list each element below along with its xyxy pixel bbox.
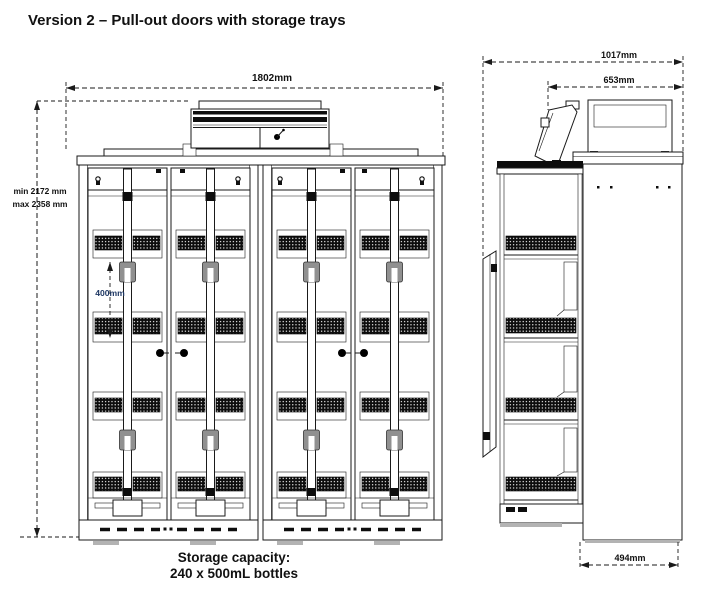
door-panel-2 (171, 168, 250, 520)
technical-drawing-page: 1802mm min 2172 mm max 2358 mm (0, 0, 711, 599)
door-panel-3 (272, 168, 351, 520)
storage-capacity-caption: Storage capacity: 240 x 500mL bottles (170, 550, 298, 581)
cabinet-unit-right (263, 165, 442, 545)
front-width-label: 1802mm (252, 73, 292, 84)
cabinet-drawing: 1802mm min 2172 mm max 2358 mm (0, 0, 711, 599)
side-base-depth-label: 494mm (614, 553, 645, 563)
door-panel-4 (355, 168, 434, 520)
front-height-max-label: max 2358 mm (13, 199, 68, 209)
side-cabinet-body (573, 152, 683, 543)
front-height-min-label: min 2172 mm (13, 186, 66, 196)
side-top-fan-unit (588, 100, 672, 156)
top-fan-unit (183, 101, 343, 156)
door-panel-1 (88, 168, 167, 520)
side-top-unit-depth-label: 653mm (603, 75, 634, 85)
caption-line2: 240 x 500mL bottles (170, 566, 298, 581)
side-overall-depth-label: 1017mm (601, 50, 637, 60)
page-title: Version 2 – Pull-out doors with storage … (28, 12, 346, 29)
roof-platform (77, 149, 445, 165)
tray-pitch-label: 400mm (95, 288, 125, 298)
caption-line1: Storage capacity: (178, 550, 291, 565)
cabinet-unit-left (79, 165, 258, 545)
open-door-leaf (483, 251, 497, 457)
